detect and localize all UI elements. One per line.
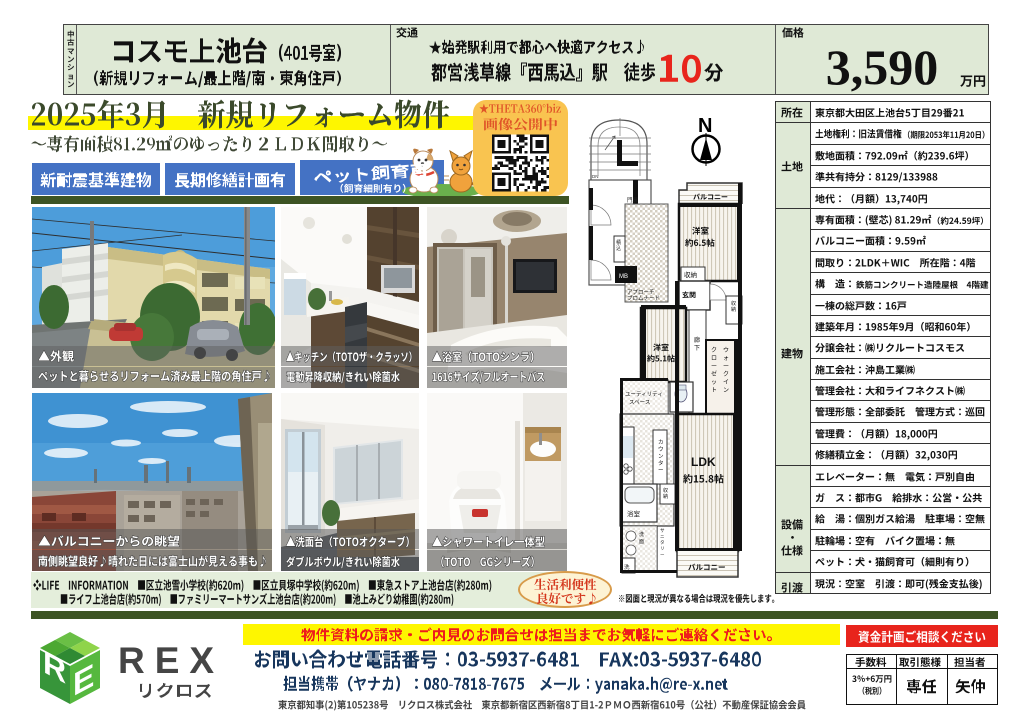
svg-text:洗: 洗: [624, 563, 630, 571]
svg-text:積: 積: [616, 239, 621, 246]
svg-text:ー: ー: [711, 364, 717, 370]
svg-text:ゼ: ゼ: [711, 370, 717, 378]
svg-text:LDK: LDK: [691, 455, 716, 469]
svg-text:スペース: スペース: [629, 399, 650, 406]
svg-text:ト: ト: [711, 388, 717, 394]
svg-text:ウ: ウ: [723, 346, 729, 354]
svg-text:ー: ー: [723, 364, 729, 370]
svg-text:込: 込: [616, 245, 621, 252]
svg-text:ッ: ッ: [711, 380, 717, 386]
svg-text:リ: リ: [660, 546, 665, 551]
svg-text:MB: MB: [619, 274, 628, 280]
svg-text:タ: タ: [660, 539, 665, 546]
svg-text:プロムナード: プロムナード: [627, 295, 660, 302]
svg-text:ー: ー: [658, 468, 664, 474]
svg-text:アプローチ: アプローチ: [627, 289, 655, 296]
svg-text:洗: 洗: [639, 531, 644, 538]
svg-text:タ: タ: [658, 459, 664, 467]
svg-text:カ: カ: [658, 439, 664, 446]
svg-text:浴室: 浴室: [627, 509, 641, 518]
svg-text:門扉: 門扉: [627, 197, 639, 204]
svg-text:収納: 収納: [684, 270, 698, 279]
svg-text:ー: ー: [660, 552, 665, 557]
svg-text:廊: 廊: [694, 336, 700, 344]
svg-text:ニ: ニ: [660, 534, 665, 539]
svg-text:下: 下: [694, 345, 700, 352]
svg-text:納: 納: [731, 306, 736, 313]
svg-text:納: 納: [663, 493, 668, 500]
svg-text:ク: ク: [723, 371, 729, 378]
svg-text:ォ: ォ: [723, 356, 729, 362]
svg-text:イ: イ: [723, 380, 729, 386]
svg-text:DN: DN: [592, 174, 599, 179]
svg-text:ウ: ウ: [658, 445, 664, 453]
svg-text:ン: ン: [658, 454, 664, 460]
svg-text:ユーティリティ: ユーティリティ: [625, 391, 663, 398]
svg-text:ン: ン: [723, 388, 729, 394]
svg-text:ク: ク: [711, 347, 717, 354]
svg-text:N: N: [698, 115, 712, 137]
svg-text:ロ: ロ: [711, 356, 717, 362]
svg-text:面: 面: [639, 539, 644, 545]
